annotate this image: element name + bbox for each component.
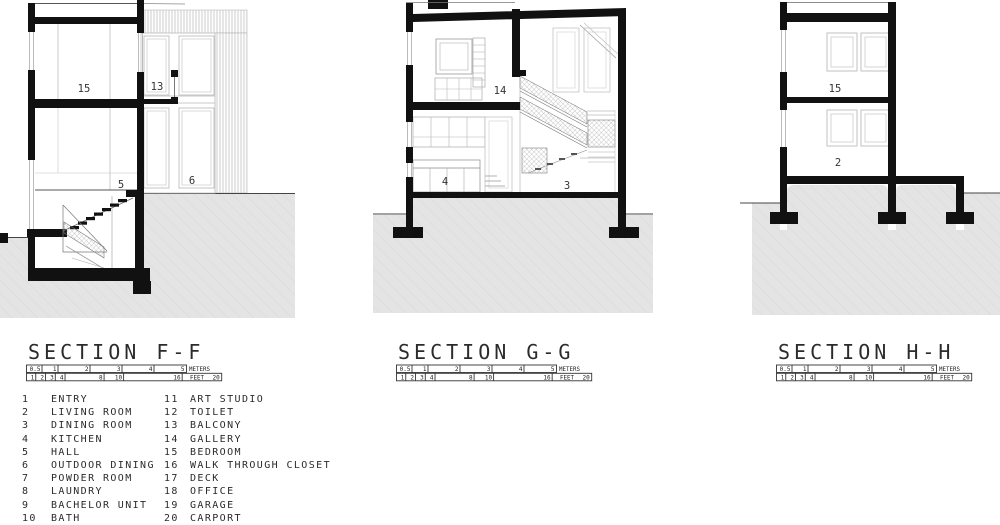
- scalebar-label: 20: [962, 374, 970, 381]
- legend-number: 20: [164, 512, 190, 525]
- ff-stair: [63, 198, 133, 270]
- scalebar-label: 16: [543, 374, 551, 381]
- scalebar-label: METERS: [189, 367, 210, 373]
- scalebar-label: 3: [867, 366, 871, 373]
- section-gg-drawing: 14 4 3: [373, 0, 658, 335]
- legend-row: 8LAUNDRY18OFFICE: [22, 485, 331, 498]
- scalebar-label: 5: [931, 366, 935, 373]
- scalebar-label: 8: [469, 374, 473, 381]
- scalebar-label: 2: [455, 366, 459, 373]
- scalebar-label: METERS: [559, 367, 580, 373]
- legend-row: 6OUTDOOR DINING16WALK THROUGH CLOSET: [22, 459, 331, 472]
- scalebar-label: FEET: [940, 375, 954, 381]
- legend-number: 17: [164, 472, 190, 485]
- section-ff-drawing: 15 13 5 6: [0, 0, 300, 335]
- hh-label-bedroom: 15: [829, 83, 842, 95]
- legend-number: 18: [164, 485, 190, 498]
- legend-number: 8: [22, 485, 51, 498]
- ff-label-outdoor-dining: 6: [189, 175, 195, 187]
- legend-room-name: POWDER ROOM: [51, 472, 164, 485]
- legend-room-name: DECK: [190, 472, 220, 485]
- section-hh-title: SECTION H-H: [778, 340, 954, 364]
- scalebar-shape: [27, 365, 187, 373]
- gg-ground: [373, 198, 653, 313]
- legend-number: 10: [22, 512, 51, 525]
- scalebar-label: 8: [99, 374, 103, 381]
- section-gg-scalebar: 0.512345METERS12348101620FEET: [396, 364, 628, 384]
- scalebar-label: 1: [781, 374, 785, 381]
- legend-number: 12: [164, 406, 190, 419]
- scalebar-label: 4: [60, 374, 64, 381]
- legend-row: 5HALL15BEDROOM: [22, 446, 331, 459]
- scalebar-label: 4: [149, 366, 153, 373]
- legend-room-name: GARAGE: [190, 499, 235, 512]
- room-legend: 1ENTRY11ART STUDIO2LIVING ROOM12TOILET3D…: [22, 393, 331, 525]
- scalebar-label: 2: [835, 366, 839, 373]
- scalebar-label: 4: [519, 366, 523, 373]
- scalebar-label: METERS: [939, 367, 960, 373]
- hh-label-living-room: 2: [835, 157, 841, 169]
- scalebar-label: 1: [423, 366, 427, 373]
- legend-row: 3DINING ROOM13BALCONY: [22, 419, 331, 432]
- scalebar-label: FEET: [190, 375, 204, 381]
- scalebar-label: 1: [803, 366, 807, 373]
- scalebar-label: 0.5: [400, 366, 411, 373]
- legend-room-name: WALK THROUGH CLOSET: [190, 459, 331, 472]
- scalebar-label: 1: [401, 374, 405, 381]
- scalebar-label: 2: [40, 374, 44, 381]
- scalebar-label: 5: [551, 366, 555, 373]
- section-ff-title: SECTION F-F: [28, 340, 204, 364]
- scalebar-label: 20: [212, 374, 220, 381]
- legend-number: 15: [164, 446, 190, 459]
- scalebar-label: 5: [181, 366, 185, 373]
- section-hh-drawing: 15 2: [740, 0, 1000, 335]
- legend-room-name: OFFICE: [190, 485, 235, 498]
- scalebar-label: 2: [410, 374, 414, 381]
- legend-room-name: HALL: [51, 446, 164, 459]
- legend-room-name: ART STUDIO: [190, 393, 264, 406]
- legend-room-name: KITCHEN: [51, 433, 164, 446]
- legend-number: 16: [164, 459, 190, 472]
- legend-row: 1ENTRY11ART STUDIO: [22, 393, 331, 406]
- legend-number: 1: [22, 393, 51, 406]
- legend-row: 4KITCHEN14GALLERY: [22, 433, 331, 446]
- legend-row: 10BATH20CARPORT: [22, 512, 331, 525]
- scalebar-shape: [777, 365, 937, 373]
- scalebar-label: 4: [899, 366, 903, 373]
- legend-number: 13: [164, 419, 190, 432]
- scalebar-label: 10: [115, 374, 123, 381]
- legend-number: 4: [22, 433, 51, 446]
- legend-room-name: DINING ROOM: [51, 419, 164, 432]
- scalebar-shape: [397, 365, 557, 373]
- legend-room-name: GALLERY: [190, 433, 242, 446]
- scalebar-label: 4: [430, 374, 434, 381]
- gg-upper-left-room: [435, 38, 485, 100]
- gg-label-kitchen: 4: [442, 176, 448, 188]
- legend-room-name: ENTRY: [51, 393, 164, 406]
- legend-number: 3: [22, 419, 51, 432]
- scalebar-label: 1: [31, 374, 35, 381]
- scalebar-label: 8: [849, 374, 853, 381]
- gg-label-gallery: 14: [494, 85, 507, 97]
- scalebar-label: 3: [487, 366, 491, 373]
- legend-room-name: TOILET: [190, 406, 235, 419]
- scalebar-label: 10: [485, 374, 493, 381]
- legend-number: 7: [22, 472, 51, 485]
- legend-room-name: BALCONY: [190, 419, 242, 432]
- legend-number: 11: [164, 393, 190, 406]
- architectural-sections-sheet: { "colors": { "ink": "#111111", "ground"…: [0, 0, 1000, 523]
- legend-row: 9BACHELOR UNIT19GARAGE: [22, 499, 331, 512]
- gg-lower-left-room: [413, 117, 512, 192]
- ff-label-bedroom: 15: [78, 83, 91, 95]
- legend-room-name: BACHELOR UNIT: [51, 499, 164, 512]
- scalebar-label: 20: [582, 374, 590, 381]
- section-gg-title: SECTION G-G: [398, 340, 574, 364]
- gg-label-dining-room: 3: [564, 180, 570, 192]
- scalebar-label: 3: [800, 374, 804, 381]
- legend-number: 19: [164, 499, 190, 512]
- gg-stair: [520, 76, 615, 192]
- section-hh-scalebar: 0.512345METERS12348101620FEET: [776, 364, 1000, 384]
- scalebar-label: 0.5: [30, 366, 41, 373]
- scalebar-label: 16: [173, 374, 181, 381]
- legend-room-name: BATH: [51, 512, 164, 525]
- legend-room-name: LAUNDRY: [51, 485, 164, 498]
- ff-ground: [0, 193, 295, 318]
- scalebar-label: 1: [53, 366, 57, 373]
- scalebar-label: 3: [420, 374, 424, 381]
- legend-number: 2: [22, 406, 51, 419]
- scalebar-label: 2: [790, 374, 794, 381]
- legend-room-name: LIVING ROOM: [51, 406, 164, 419]
- scalebar-label: 3: [117, 366, 121, 373]
- gg-upper-right-room: [553, 23, 619, 92]
- section-ff-scalebar: 0.512345METERS12348101620FEET: [26, 364, 258, 384]
- legend-number: 5: [22, 446, 51, 459]
- legend-room-name: CARPORT: [190, 512, 242, 525]
- legend-number: 6: [22, 459, 51, 472]
- legend-number: 9: [22, 499, 51, 512]
- legend-row: 7POWDER ROOM17DECK: [22, 472, 331, 485]
- scalebar-label: 10: [865, 374, 873, 381]
- legend-room-name: BEDROOM: [190, 446, 242, 459]
- ff-label-balcony: 13: [151, 81, 164, 93]
- scalebar-label: 3: [50, 374, 54, 381]
- legend-room-name: OUTDOOR DINING: [51, 459, 164, 472]
- ff-label-hall: 5: [118, 179, 124, 191]
- scalebar-label: 0.5: [780, 366, 791, 373]
- scalebar-label: FEET: [560, 375, 574, 381]
- scalebar-label: 4: [810, 374, 814, 381]
- legend-row: 2LIVING ROOM12TOILET: [22, 406, 331, 419]
- scalebar-label: 2: [85, 366, 89, 373]
- ff-balcony-doors: [141, 33, 215, 193]
- scalebar-label: 16: [923, 374, 931, 381]
- legend-number: 14: [164, 433, 190, 446]
